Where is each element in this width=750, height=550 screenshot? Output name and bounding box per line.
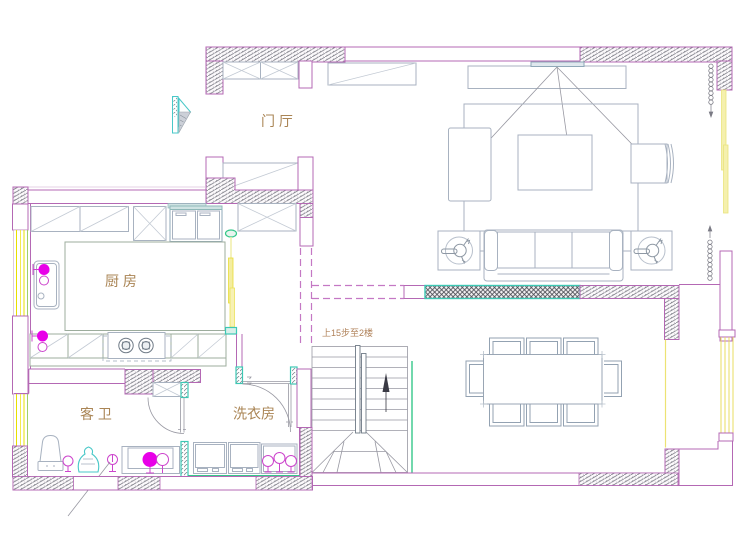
svg-text:上15步至2楼: 上15步至2楼 xyxy=(322,327,373,338)
svg-text:洗衣房: 洗衣房 xyxy=(233,406,275,422)
svg-text:厨 房: 厨 房 xyxy=(105,273,137,289)
svg-text:客 卫: 客 卫 xyxy=(80,406,112,422)
svg-text:门 厅: 门 厅 xyxy=(261,113,293,129)
